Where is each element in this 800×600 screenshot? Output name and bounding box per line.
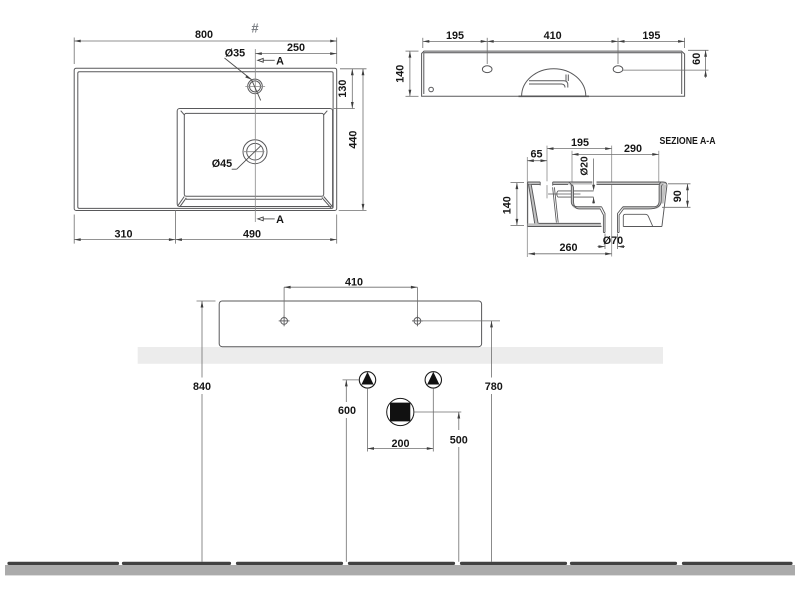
svg-text:140: 140 bbox=[501, 196, 513, 214]
svg-text:195: 195 bbox=[571, 137, 589, 149]
svg-text:490: 490 bbox=[243, 228, 261, 240]
svg-text:60: 60 bbox=[691, 53, 703, 65]
svg-text:440: 440 bbox=[348, 131, 360, 149]
svg-text:410: 410 bbox=[345, 276, 363, 288]
svg-text:90: 90 bbox=[672, 190, 684, 202]
svg-text:200: 200 bbox=[391, 438, 409, 450]
svg-text:800: 800 bbox=[195, 29, 213, 41]
svg-text:#: # bbox=[251, 20, 259, 35]
svg-text:310: 310 bbox=[114, 228, 132, 240]
svg-text:A: A bbox=[276, 214, 284, 226]
svg-text:500: 500 bbox=[450, 434, 468, 446]
svg-text:410: 410 bbox=[544, 30, 562, 42]
svg-text:840: 840 bbox=[193, 381, 211, 393]
svg-text:SEZIONE A-A: SEZIONE A-A bbox=[660, 135, 716, 147]
svg-text:140: 140 bbox=[394, 65, 406, 83]
svg-text:Ø70: Ø70 bbox=[603, 235, 623, 247]
svg-text:Ø20: Ø20 bbox=[579, 156, 590, 176]
svg-text:780: 780 bbox=[485, 381, 503, 393]
svg-text:Ø45: Ø45 bbox=[212, 158, 232, 170]
svg-text:290: 290 bbox=[624, 143, 642, 155]
svg-text:195: 195 bbox=[642, 30, 660, 42]
svg-text:A: A bbox=[276, 55, 284, 67]
svg-text:600: 600 bbox=[338, 405, 356, 417]
svg-text:65: 65 bbox=[530, 148, 542, 160]
svg-text:Ø35: Ø35 bbox=[225, 48, 245, 60]
svg-text:250: 250 bbox=[287, 42, 305, 54]
svg-text:195: 195 bbox=[446, 30, 464, 42]
svg-text:260: 260 bbox=[559, 242, 577, 254]
svg-text:130: 130 bbox=[337, 80, 349, 98]
